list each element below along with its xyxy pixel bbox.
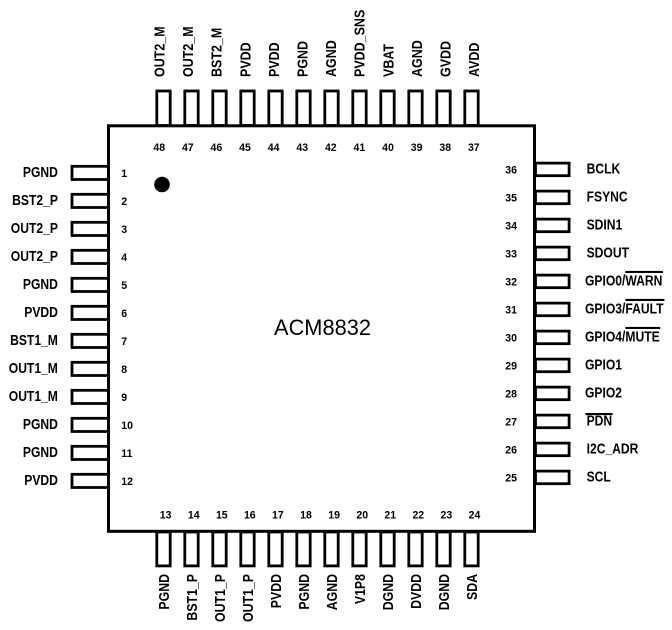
svg-text:12: 12 [121, 476, 133, 488]
svg-text:43: 43 [296, 142, 308, 154]
svg-text:25: 25 [505, 472, 517, 484]
svg-text:SCL: SCL [587, 469, 611, 485]
svg-text:33: 33 [505, 248, 517, 260]
svg-text:31: 31 [505, 304, 517, 316]
svg-text:AGND: AGND [324, 574, 340, 611]
svg-text:1: 1 [121, 168, 127, 180]
svg-text:9: 9 [121, 392, 127, 404]
svg-text:PGND: PGND [296, 574, 312, 610]
svg-text:29: 29 [505, 360, 517, 372]
svg-text:22: 22 [412, 509, 424, 521]
svg-text:OUT1_P: OUT1_P [212, 574, 228, 622]
svg-text:OUT2_P: OUT2_P [11, 220, 58, 236]
svg-text:DVDD: DVDD [408, 574, 424, 609]
svg-text:AGND: AGND [409, 40, 425, 77]
svg-text:44: 44 [268, 142, 280, 154]
svg-text:24: 24 [469, 509, 481, 521]
svg-text:19: 19 [328, 509, 340, 521]
svg-text:PVDD: PVDD [268, 574, 284, 608]
svg-text:FSYNC: FSYNC [587, 189, 628, 205]
svg-text:PVDD: PVDD [24, 472, 58, 488]
svg-text:5: 5 [121, 280, 127, 292]
svg-text:ACM8832: ACM8832 [274, 315, 371, 340]
svg-text:4: 4 [121, 252, 127, 264]
svg-text:DGND: DGND [436, 574, 452, 611]
svg-text:BST1_M: BST1_M [10, 332, 58, 348]
svg-text:45: 45 [239, 142, 251, 154]
svg-text:20: 20 [356, 509, 368, 521]
svg-text:GPIO0/WARN: GPIO0/WARN [585, 273, 662, 289]
svg-text:32: 32 [505, 276, 517, 288]
svg-text:GVDD: GVDD [438, 41, 454, 77]
svg-text:SDA: SDA [464, 574, 480, 600]
svg-text:42: 42 [325, 142, 337, 154]
svg-text:PVDD: PVDD [237, 42, 253, 77]
svg-text:BST1_P: BST1_P [184, 574, 200, 621]
svg-text:35: 35 [505, 192, 517, 204]
svg-text:OUT1_P: OUT1_P [240, 574, 256, 622]
svg-text:SDOUT: SDOUT [587, 245, 630, 261]
svg-text:OUT1_M: OUT1_M [9, 360, 58, 376]
svg-text:48: 48 [153, 142, 165, 154]
svg-text:BST2_M: BST2_M [209, 28, 225, 77]
svg-text:27: 27 [505, 416, 517, 428]
svg-text:13: 13 [160, 509, 172, 521]
svg-text:11: 11 [121, 448, 132, 460]
svg-text:SDIN1: SDIN1 [587, 217, 623, 233]
svg-text:38: 38 [439, 142, 451, 154]
svg-text:PVDD_SNS: PVDD_SNS [352, 10, 368, 77]
svg-text:2: 2 [121, 196, 127, 208]
svg-text:V1P8: V1P8 [352, 574, 368, 605]
svg-text:36: 36 [505, 164, 517, 176]
svg-text:18: 18 [300, 509, 312, 521]
svg-text:17: 17 [272, 509, 284, 521]
svg-text:AGND: AGND [323, 40, 339, 77]
svg-text:PGND: PGND [23, 164, 58, 180]
svg-text:21: 21 [384, 509, 396, 521]
svg-text:PGND: PGND [23, 416, 58, 432]
svg-text:30: 30 [505, 332, 517, 344]
svg-text:47: 47 [182, 142, 194, 154]
svg-text:26: 26 [505, 444, 517, 456]
svg-text:PVDD: PVDD [24, 304, 58, 320]
svg-text:I2C_ADR: I2C_ADR [587, 441, 639, 457]
svg-text:PGND: PGND [23, 444, 58, 460]
svg-text:37: 37 [468, 142, 480, 154]
svg-text:OUT1_M: OUT1_M [9, 388, 58, 404]
svg-text:34: 34 [505, 220, 517, 232]
svg-text:OUT2_P: OUT2_P [11, 248, 58, 264]
svg-text:BST2_P: BST2_P [12, 192, 58, 208]
svg-text:14: 14 [188, 509, 200, 521]
svg-text:10: 10 [121, 420, 133, 432]
svg-text:PVDD: PVDD [266, 42, 282, 77]
svg-text:40: 40 [382, 142, 394, 154]
svg-text:BCLK: BCLK [587, 161, 621, 177]
svg-text:28: 28 [505, 388, 517, 400]
svg-text:8: 8 [121, 364, 127, 376]
svg-text:7: 7 [121, 336, 127, 348]
svg-text:DGND: DGND [380, 574, 396, 611]
svg-text:PGND: PGND [156, 574, 172, 610]
svg-text:16: 16 [244, 509, 256, 521]
svg-text:46: 46 [211, 142, 223, 154]
svg-text:41: 41 [354, 142, 366, 154]
svg-text:VBAT: VBAT [380, 43, 396, 77]
svg-text:15: 15 [216, 509, 228, 521]
svg-text:GPIO3/FAULT: GPIO3/FAULT [585, 301, 664, 317]
svg-text:GPIO1: GPIO1 [585, 357, 623, 373]
svg-text:3: 3 [121, 224, 127, 236]
svg-text:OUT2_M: OUT2_M [180, 26, 196, 77]
svg-text:GPIO2: GPIO2 [585, 385, 622, 401]
svg-text:GPIO4/MUTE: GPIO4/MUTE [585, 329, 660, 345]
svg-text:PGND: PGND [295, 41, 311, 77]
svg-text:PGND: PGND [23, 276, 58, 292]
svg-text:39: 39 [411, 142, 423, 154]
svg-text:23: 23 [441, 509, 453, 521]
svg-text:6: 6 [121, 308, 127, 320]
svg-text:OUT2_M: OUT2_M [152, 26, 168, 77]
svg-text:AVDD: AVDD [466, 42, 482, 77]
